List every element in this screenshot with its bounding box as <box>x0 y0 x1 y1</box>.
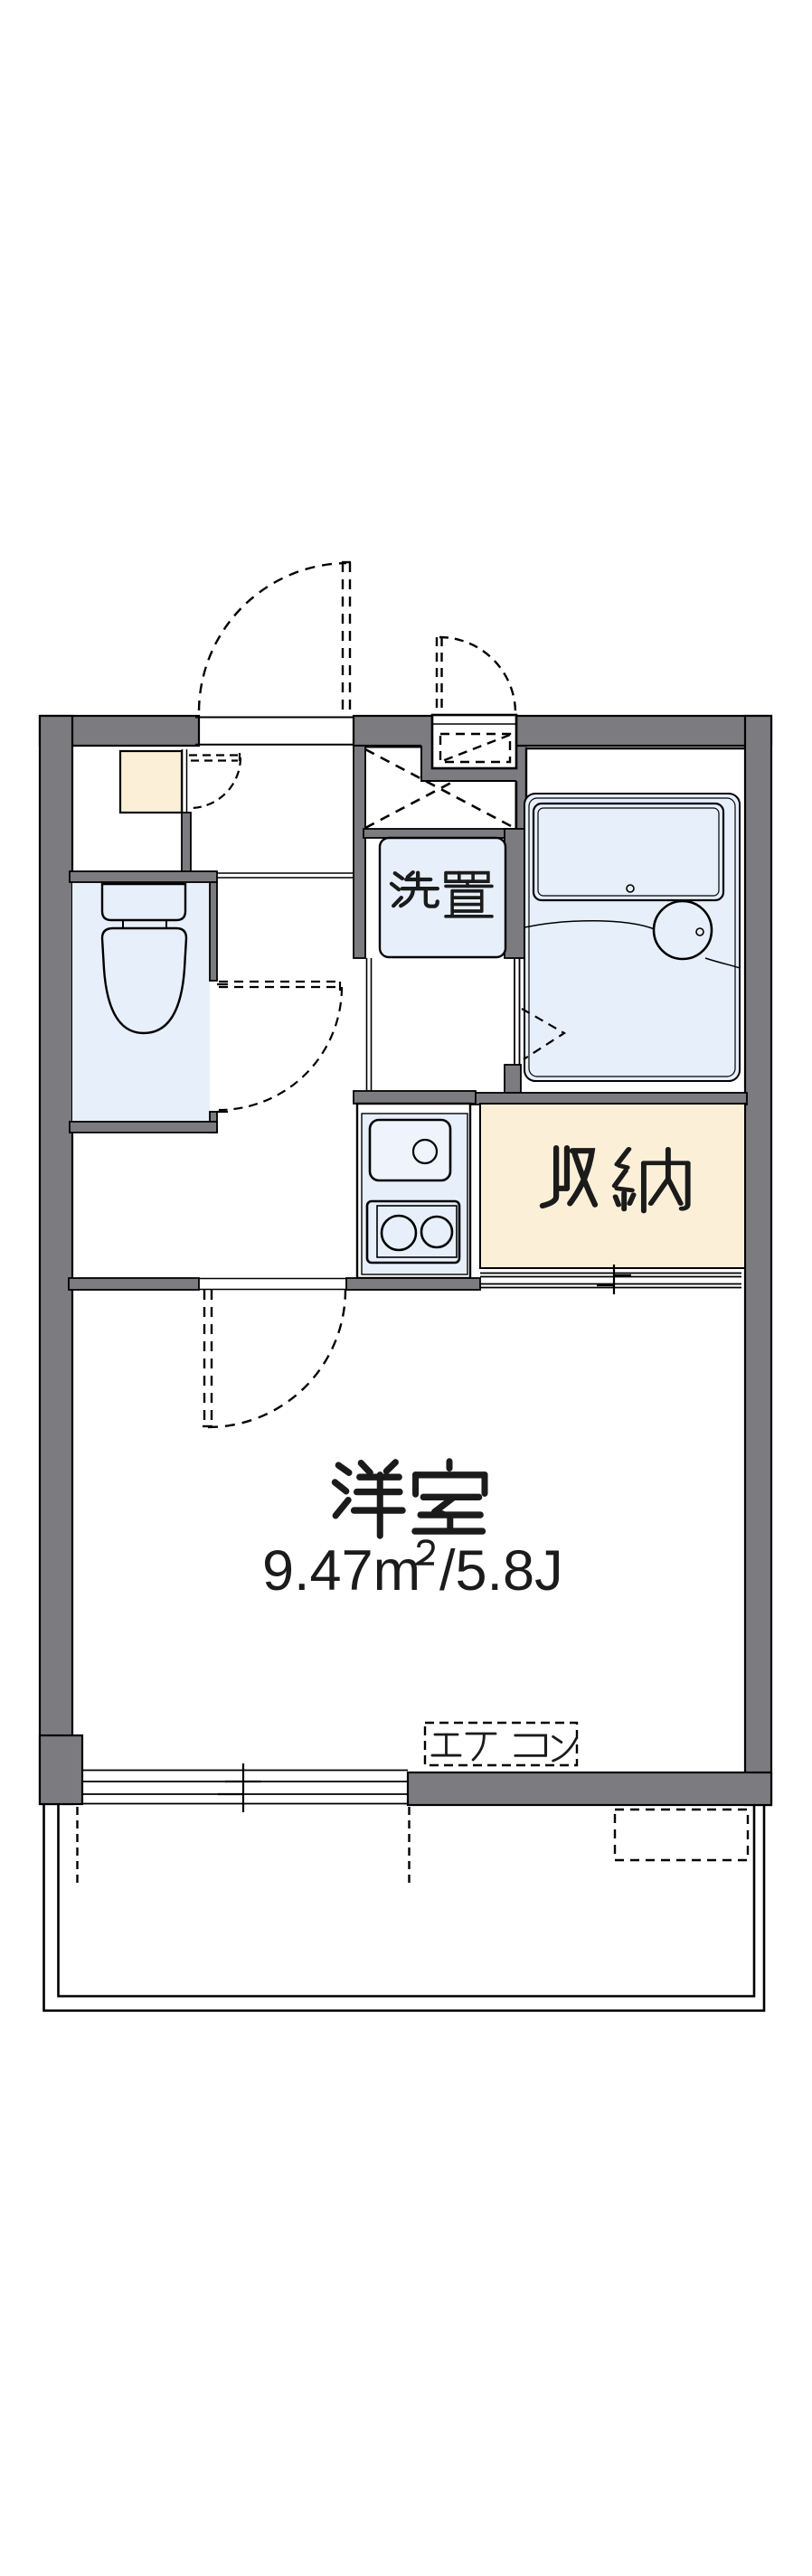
svg-text:/5.8J: /5.8J <box>439 1539 563 1603</box>
svg-text:9.47m: 9.47m <box>262 1539 420 1603</box>
